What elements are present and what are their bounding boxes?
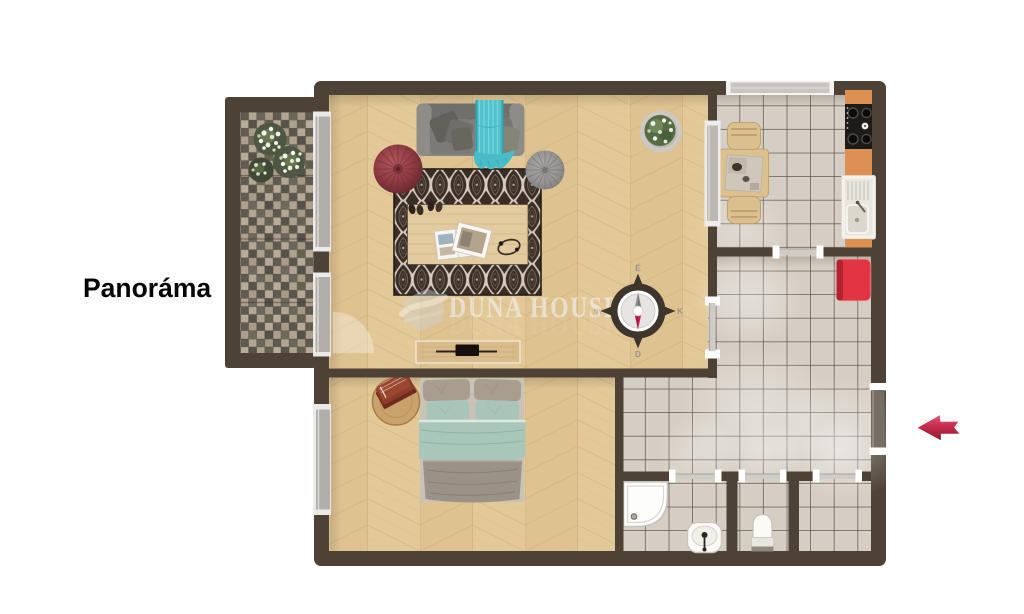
svg-text:Panoráma: Panoráma [83, 273, 211, 303]
svg-text:K: K [677, 307, 683, 316]
svg-text:D: D [635, 349, 641, 359]
svg-text:NY: NY [593, 309, 603, 316]
svg-text:É: É [635, 263, 641, 273]
